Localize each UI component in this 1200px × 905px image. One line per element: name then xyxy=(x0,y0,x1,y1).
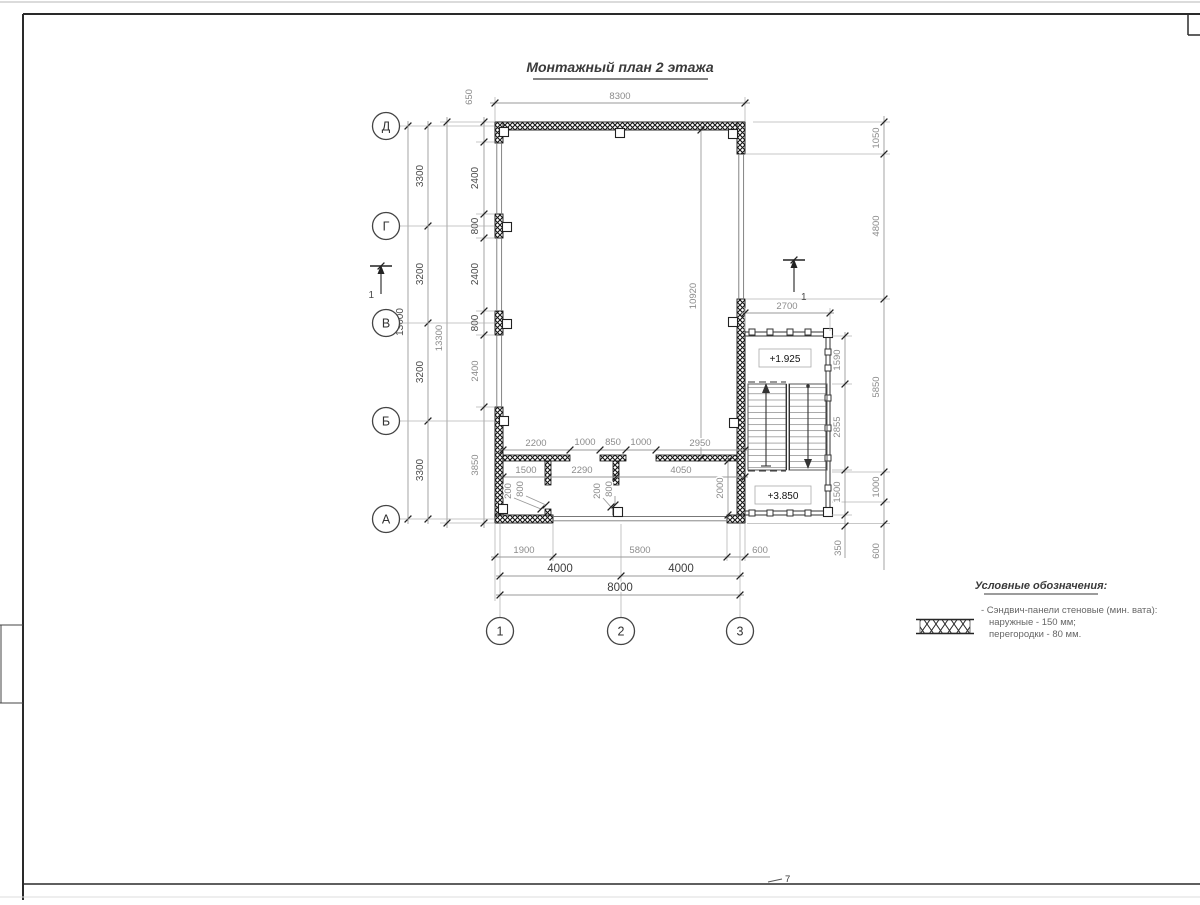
axis-label-3: 3 xyxy=(737,625,744,639)
dim-part-bot-1: 1500 xyxy=(515,465,536,476)
axis-label-a: А xyxy=(382,513,391,527)
dim-stair-seg-4: 350 xyxy=(833,540,844,556)
axis-label-2: 2 xyxy=(618,625,625,639)
dim-part-top-4: 1000 xyxy=(630,437,651,448)
legend-line-2: наружные - 150 мм; xyxy=(989,617,1076,628)
page-mark-text: 7 xyxy=(785,874,790,885)
dim-wall-seg-5: 2400 xyxy=(470,360,481,381)
dim-door-offset-1: 200 xyxy=(503,483,514,499)
dim-right-seg-1: 1050 xyxy=(871,127,882,148)
dim-outer-total: 13300 xyxy=(434,325,445,351)
dim-stair-seg-2: 2855 xyxy=(832,416,843,437)
dim-span-b-a: 3300 xyxy=(415,458,426,481)
section-label-right: 1 xyxy=(801,292,807,303)
dim-stair-seg-3: 1500 xyxy=(832,481,843,502)
section-label-left: 1 xyxy=(368,290,374,301)
dim-bottom-span-1: 4000 xyxy=(547,563,573,575)
dim-bottom-seg-2: 5800 xyxy=(629,545,650,556)
sheet-frame xyxy=(0,2,1200,900)
dim-span-g-v: 3200 xyxy=(415,262,426,285)
drawing-title: Монтажный план 2 этажа xyxy=(526,59,714,75)
dim-right-seg-5: 600 xyxy=(871,543,882,559)
legend: Условные обозначения: - Сэндвич-панели с… xyxy=(916,580,1157,640)
sandwich-panel-symbol xyxy=(916,620,974,634)
axis-label-d: Д xyxy=(382,120,391,134)
dim-right-seg-3: 5850 xyxy=(871,376,882,397)
dim-stair-seg-1: 1590 xyxy=(832,349,843,370)
axis-label-v: В xyxy=(382,317,390,331)
interior-partitions xyxy=(503,455,737,515)
dim-stair-width: 2700 xyxy=(776,301,797,312)
dim-bottom-seg-1: 1900 xyxy=(513,545,534,556)
dim-door-offset-2: 200 xyxy=(592,483,603,499)
dim-wall-seg-6: 3850 xyxy=(470,454,481,475)
dim-wall-seg-1: 2400 xyxy=(470,166,481,189)
dim-room-depth: 2000 xyxy=(715,477,726,498)
axis-label-1: 1 xyxy=(497,625,504,639)
dim-door-width-2: 800 xyxy=(604,481,615,497)
dim-part-top-1: 2200 xyxy=(525,438,546,449)
dim-top-corner: 650 xyxy=(464,89,475,105)
dim-door-width-1: 800 xyxy=(515,481,526,497)
dim-part-bot-2: 2290 xyxy=(571,465,592,476)
dim-wall-seg-3: 2400 xyxy=(470,262,481,285)
dim-part-top-2: 1000 xyxy=(574,437,595,448)
exterior-walls xyxy=(495,122,745,523)
legend-line-3: перегородки - 80 мм. xyxy=(989,629,1081,640)
dim-right-seg-4: 1000 xyxy=(871,476,882,497)
dim-top-width: 8300 xyxy=(609,91,630,102)
elevation-upper: +1.925 xyxy=(770,354,801,365)
dim-span-d-g: 3300 xyxy=(415,164,426,187)
dim-part-top-3: 850 xyxy=(605,437,621,448)
legend-line-1: - Сэндвич-панели стеновые (мин. вата): xyxy=(981,605,1157,616)
axis-label-g: Г xyxy=(383,220,390,234)
floor-plan-svg: Монтажный план 2 этажа xyxy=(0,0,1200,900)
dim-bottom-seg-3: 600 xyxy=(752,545,768,556)
section-marker-left: 1 xyxy=(368,263,392,301)
dim-bottom-span-2: 4000 xyxy=(668,563,694,575)
axis-label-b: Б xyxy=(382,415,390,429)
dim-part-bot-3: 4050 xyxy=(670,465,691,476)
dim-part-top-5: 2950 xyxy=(689,438,710,449)
drawing-sheet: Монтажный план 2 этажа xyxy=(0,0,1200,900)
extension-lines xyxy=(440,97,890,617)
dim-right-seg-2: 4800 xyxy=(871,215,882,236)
dim-interior-height: 10920 xyxy=(688,283,699,309)
stair-flights xyxy=(748,382,827,471)
section-marker-right: 1 xyxy=(783,257,807,303)
legend-title: Условные обозначения: xyxy=(975,580,1108,592)
elevation-lower: +3.850 xyxy=(768,491,799,502)
dim-span-v-b: 3200 xyxy=(415,360,426,383)
dim-bottom-total: 8000 xyxy=(607,582,633,594)
axis-col-markers: 1 2 3 xyxy=(487,618,754,645)
stair-wing: +1.925 +3.850 xyxy=(745,329,833,517)
